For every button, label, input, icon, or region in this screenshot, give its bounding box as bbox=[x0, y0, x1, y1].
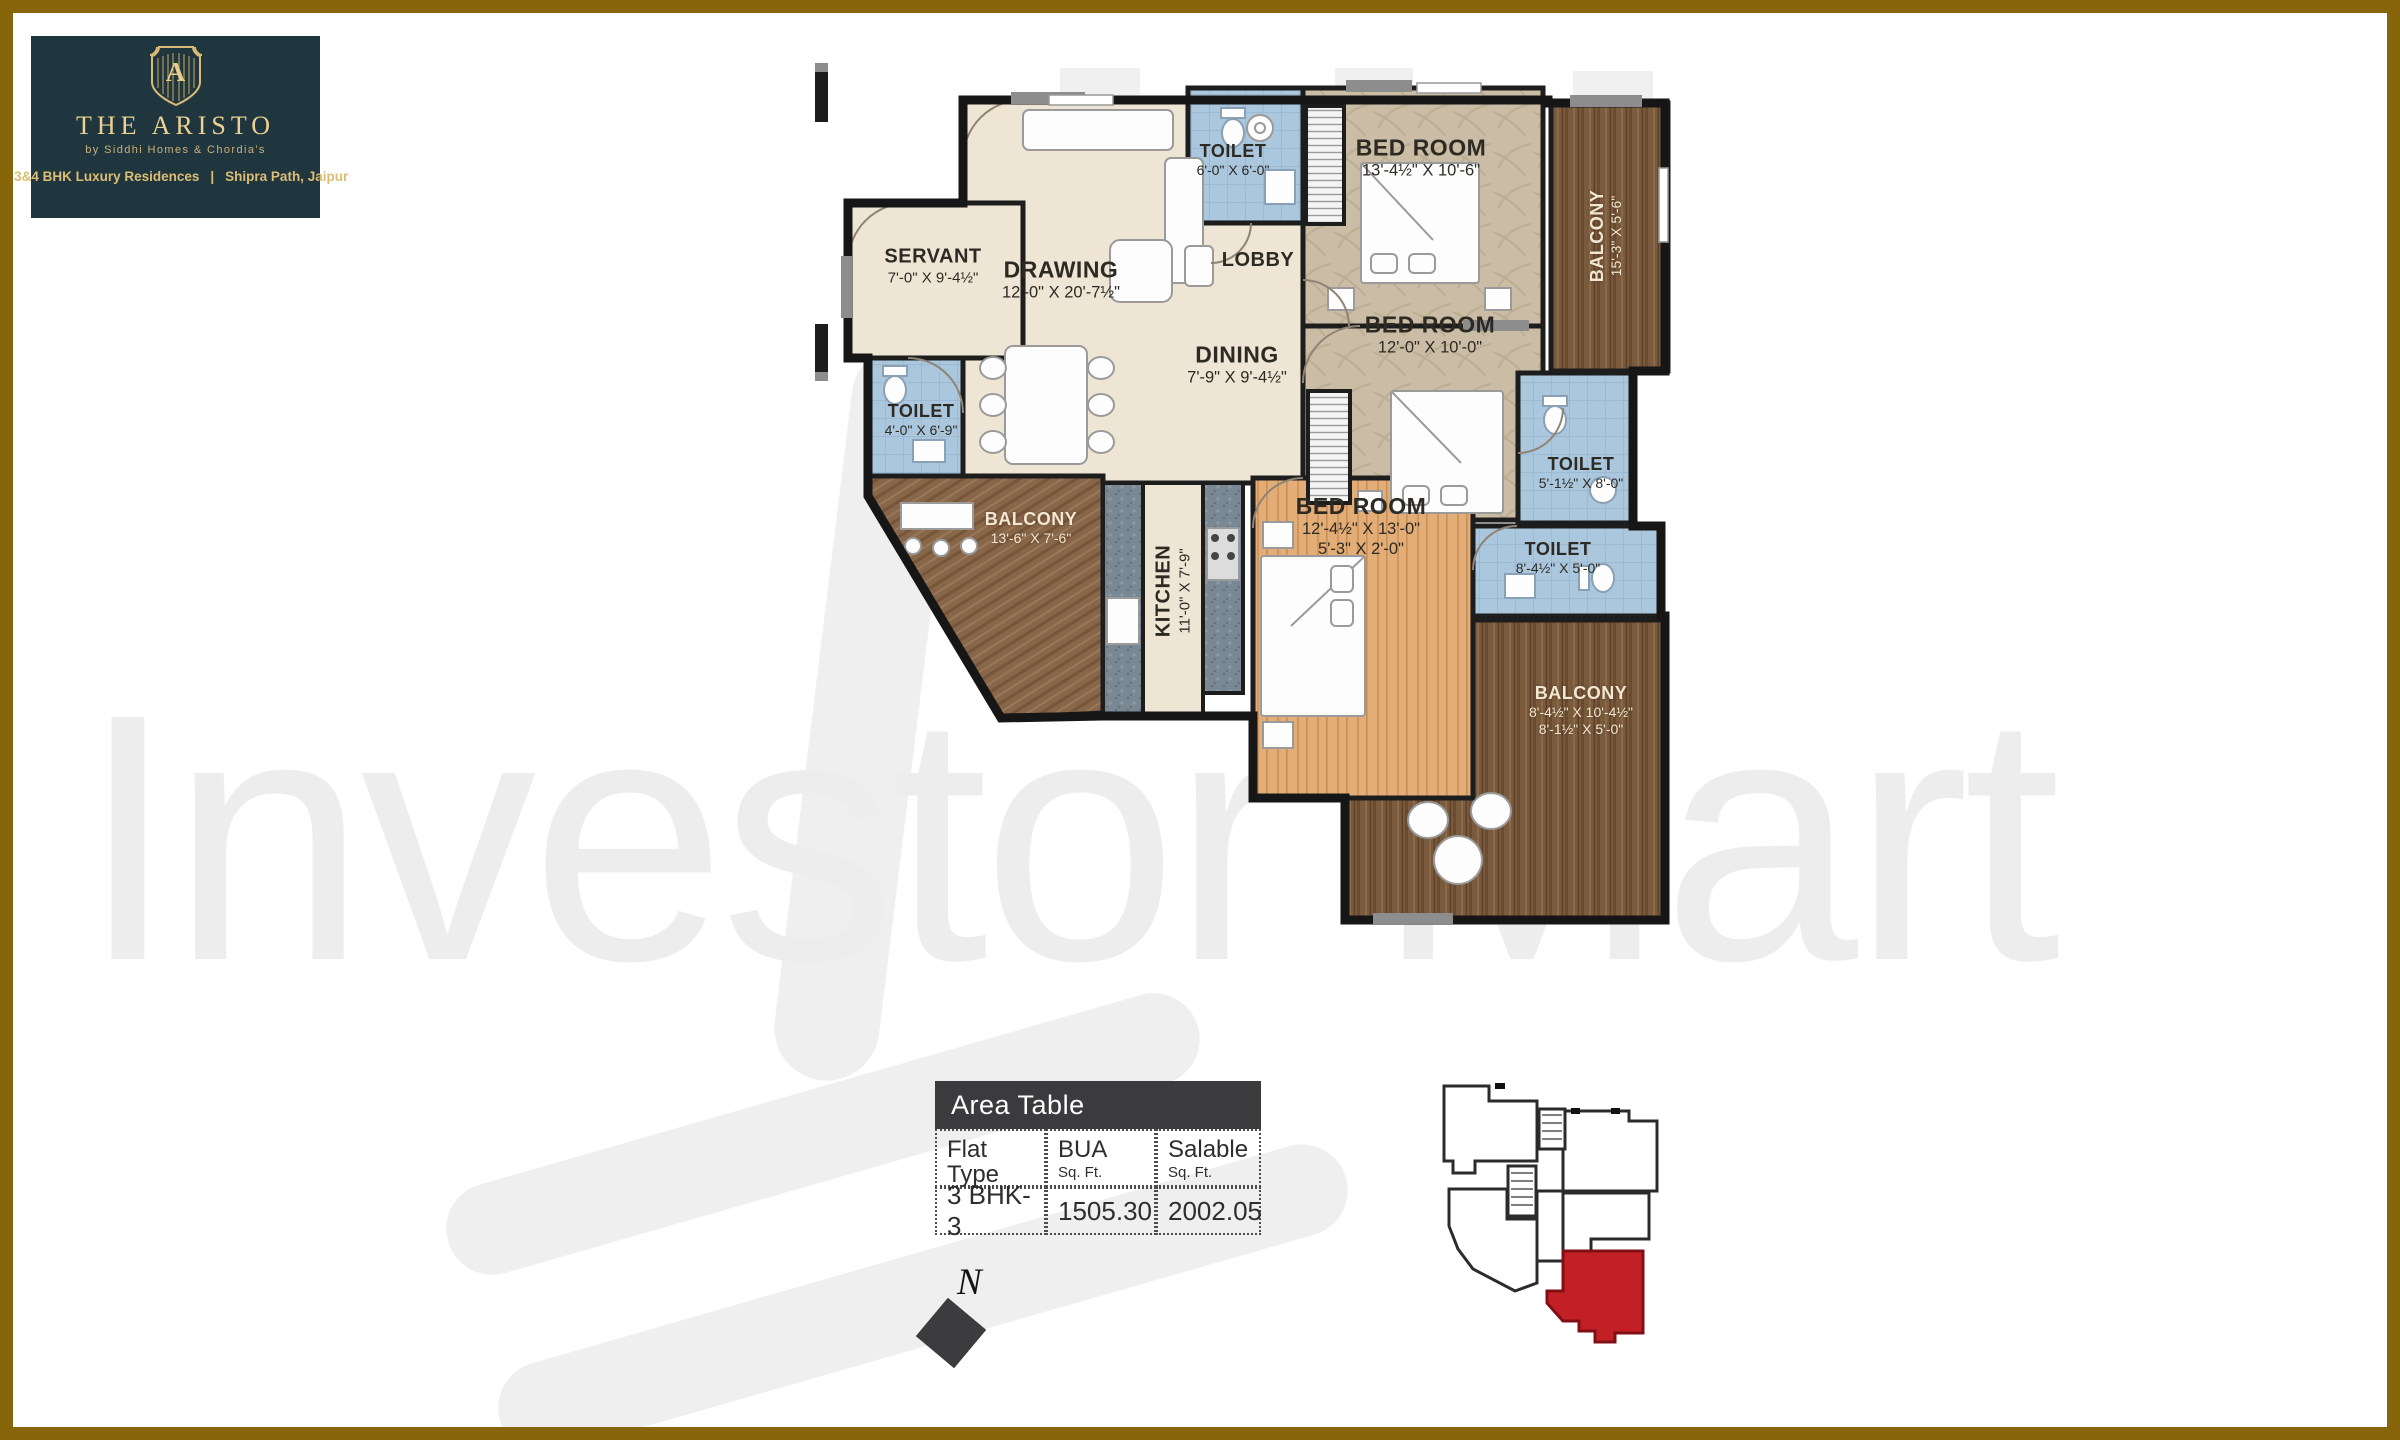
label-servant: SERVANT 7'-0" X 9'-4½" bbox=[884, 245, 981, 286]
label-drawing: DRAWING 12'-0" X 20'-7½" bbox=[1002, 257, 1120, 304]
bench bbox=[901, 503, 973, 529]
aristo-monogram: A bbox=[147, 57, 205, 88]
balcony-chair bbox=[1408, 802, 1448, 838]
label-toilet-left: TOILET 4'-0" X 6'-9" bbox=[885, 401, 958, 439]
label-bedroom-mid: BED ROOM 12'-0" X 10'-0" bbox=[1365, 312, 1496, 359]
north-label: N bbox=[957, 1261, 1039, 1304]
label-toilet-top: TOILET 6'-0" X 6'-0" bbox=[1197, 141, 1270, 179]
cell-flat-type: 3 BHK-3 bbox=[935, 1187, 1046, 1235]
area-table-grid: Flat Type BUA Sq. Ft. Salable Sq. Ft. 3 … bbox=[935, 1129, 1261, 1235]
label-bedroom-top: BED ROOM 13'-4½" X 10'-6" bbox=[1356, 135, 1487, 182]
brand-subtitle-separator: | bbox=[210, 169, 214, 184]
aristo-shield-icon: A bbox=[147, 44, 205, 108]
key-unit bbox=[1444, 1086, 1537, 1173]
key-plan bbox=[1411, 1051, 1711, 1376]
label-lobby: LOBBY bbox=[1222, 249, 1295, 273]
brand-logo-panel: A THE ARISTO by Siddhi Homes & Chordia's… bbox=[31, 36, 320, 218]
area-table-title: Area Table bbox=[935, 1081, 1261, 1129]
kitchen-counter-right bbox=[1203, 483, 1243, 693]
cell-salable: 2002.05 bbox=[1156, 1187, 1261, 1235]
key-unit bbox=[1563, 1111, 1657, 1191]
label-bedroom-bottom: BED ROOM 12'-4½" X 13'-0" 5'-3" X 2'-0" bbox=[1296, 493, 1427, 559]
brand-title: THE ARISTO bbox=[76, 111, 275, 141]
room-toilet-right bbox=[1518, 373, 1633, 523]
label-balcony-bottom: BALCONY 8'-4½" X 10'-4½" 8'-1½" X 5'-0" bbox=[1529, 683, 1633, 737]
balcony-table bbox=[1434, 836, 1482, 884]
key-corridor bbox=[1537, 1191, 1563, 1261]
brand-subtitle-right: Shipra Path, Jaipur bbox=[225, 169, 348, 184]
label-toilet-right: TOILET 5'-1½" X 8'-0" bbox=[1539, 454, 1624, 492]
label-balcony-left: BALCONY 13'-6" X 7'-6" bbox=[985, 509, 1078, 547]
page: Investor Mart A THE ARISTO by Siddhi Hom… bbox=[0, 0, 2400, 1440]
key-unit bbox=[1563, 1193, 1649, 1251]
label-toilet-bottom: TOILET 8'-4½" X 5'-0" bbox=[1516, 539, 1601, 577]
label-dining: DINING 7'-9" X 9'-4½" bbox=[1187, 342, 1287, 389]
kitchen-sink bbox=[1107, 598, 1139, 644]
label-kitchen: KITCHEN 11'-0" X 7'-9" bbox=[1152, 545, 1193, 637]
area-table: Area Table Flat Type BUA Sq. Ft. Salable… bbox=[935, 1081, 1261, 1235]
key-unit-highlighted bbox=[1547, 1251, 1643, 1342]
brand-subtitle: 2,3&4 BHK Luxury Residences | Shipra Pat… bbox=[3, 169, 348, 184]
floor-plan: SERVANT 7'-0" X 9'-4½" DRAWING 12'-0" X … bbox=[813, 58, 1673, 933]
column-header-flat-type: Flat Type bbox=[935, 1129, 1046, 1187]
sofa bbox=[1023, 110, 1173, 150]
floor-plan-drawing bbox=[813, 58, 1673, 933]
cell-bua: 1505.30 bbox=[1046, 1187, 1156, 1235]
wash-basin bbox=[1185, 246, 1213, 286]
north-indicator: N bbox=[909, 1261, 1039, 1391]
label-balcony-right: BALCONY 15'-3" X 5'-6" bbox=[1587, 190, 1625, 283]
north-diamond-icon bbox=[916, 1298, 986, 1368]
dining-table bbox=[1005, 346, 1087, 464]
column-header-salable: Salable Sq. Ft. bbox=[1156, 1129, 1261, 1187]
brand-subtitle-left: 2,3&4 BHK Luxury Residences bbox=[3, 169, 200, 184]
balcony-chair bbox=[1471, 793, 1511, 829]
column-header-bua: BUA Sq. Ft. bbox=[1046, 1129, 1156, 1187]
brand-tagline: by Siddhi Homes & Chordia's bbox=[85, 144, 266, 156]
